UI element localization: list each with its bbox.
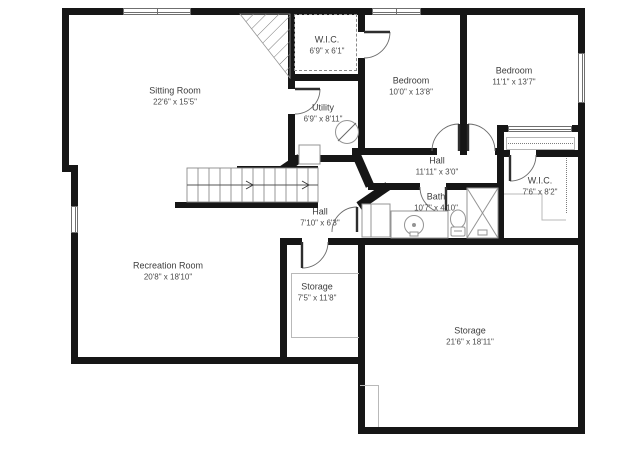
room-label-wic-right: W.I.C. 7'6" x 8'2"	[523, 175, 558, 198]
room-name: Hall	[416, 155, 459, 167]
window	[372, 8, 397, 15]
stairs-direction-arrow	[246, 181, 253, 189]
storage-nook-outline	[360, 385, 379, 427]
room-dims: 11'1" x 13'7"	[492, 77, 535, 88]
wall-segment	[358, 8, 365, 32]
room-label-storage-large: Storage 21'6" x 18'11"	[446, 325, 494, 348]
room-label-bedroom-left: Bedroom 10'0" x 13'8"	[389, 75, 433, 98]
room-label-recreation-room: Recreation Room 20'8" x 18'10"	[133, 260, 203, 283]
wall-segment	[288, 81, 295, 89]
door-arc	[420, 187, 446, 213]
sliding-closet-door	[508, 126, 572, 132]
room-dims: 7'10" x 6'3"	[300, 218, 339, 229]
wall-segment	[71, 357, 365, 364]
closet-rod	[508, 143, 573, 144]
door-arc	[468, 124, 495, 151]
wall-segment	[536, 150, 585, 157]
door-arc	[302, 242, 328, 268]
wall-segment	[352, 148, 437, 155]
stairs	[187, 168, 318, 202]
vanity-sink	[391, 211, 448, 238]
door-arc	[510, 155, 536, 181]
wall-segment	[497, 238, 585, 245]
wall-segment	[237, 166, 318, 172]
room-dims: 11'11" x 3'0"	[416, 167, 459, 178]
room-name: W.I.C.	[523, 175, 558, 187]
room-dims: 10'7" x 4'10"	[414, 203, 458, 214]
door-arc	[364, 32, 390, 58]
wall-segment	[460, 8, 467, 155]
window	[578, 53, 585, 103]
room-label-sitting-room: Sitting Room 22'6" x 15'5"	[149, 85, 201, 108]
room-name: Bedroom	[389, 75, 433, 87]
room-label-utility: Utility 6'9" x 8'11"	[304, 102, 343, 125]
room-name: Storage	[446, 325, 494, 337]
room-name: Bedroom	[492, 65, 535, 77]
room-dims: 22'6" x 15'5"	[149, 97, 201, 108]
room-name: Recreation Room	[133, 260, 203, 272]
wall-segment	[358, 58, 365, 152]
room-label-hall-lower: Hall 7'10" x 6'3"	[300, 206, 339, 229]
wall-segment	[358, 427, 585, 434]
wall-segment	[497, 150, 504, 242]
window	[396, 8, 421, 15]
wall-segment	[62, 8, 69, 172]
floor-plan: Sitting Room 22'6" x 15'5" W.I.C. 6'9" x…	[0, 0, 640, 454]
wall-segment	[497, 125, 508, 132]
room-dims: 6'9" x 8'11"	[304, 114, 343, 125]
room-label-hall-upper: Hall 11'11" x 3'0"	[416, 155, 459, 178]
wall-segment	[368, 183, 420, 190]
bath-cabinet	[362, 204, 390, 237]
storage-area-outline	[291, 273, 359, 338]
wall-segment	[175, 202, 318, 208]
room-dims: 20'8" x 18'10"	[133, 272, 203, 283]
door-arc	[332, 207, 357, 232]
room-dims: 10'0" x 13'8"	[389, 87, 433, 98]
room-label-bath: Bath 10'7" x 4'10"	[414, 191, 458, 214]
window	[71, 206, 78, 233]
wall-segment	[288, 74, 365, 81]
wall-segment	[71, 165, 78, 364]
wall-segment	[572, 125, 585, 132]
stairs-upper-run	[240, 14, 290, 78]
toilet	[451, 210, 466, 236]
room-name: Sitting Room	[149, 85, 201, 97]
stairs-direction-arrow	[302, 181, 309, 189]
closet-shelving-dashed	[294, 14, 357, 71]
room-dims: 21'6" x 18'11"	[446, 337, 494, 348]
room-name: Bath	[414, 191, 458, 203]
closet-rod	[566, 158, 567, 213]
shower	[467, 188, 498, 238]
window	[123, 8, 158, 15]
wall-segment	[295, 155, 358, 162]
closet-shelf-outline	[504, 194, 566, 220]
wall-segment	[288, 114, 295, 164]
wall-segment	[446, 183, 504, 190]
wall-segment	[328, 238, 505, 245]
water-heater	[336, 121, 359, 144]
door-arc	[295, 89, 320, 114]
room-label-bedroom-right: Bedroom 11'1" x 13'7"	[492, 65, 535, 88]
room-dims: 7'6" x 8'2"	[523, 187, 558, 198]
door-arc	[432, 124, 459, 151]
wall-segment	[280, 238, 287, 364]
room-name: Utility	[304, 102, 343, 114]
window	[157, 8, 191, 15]
